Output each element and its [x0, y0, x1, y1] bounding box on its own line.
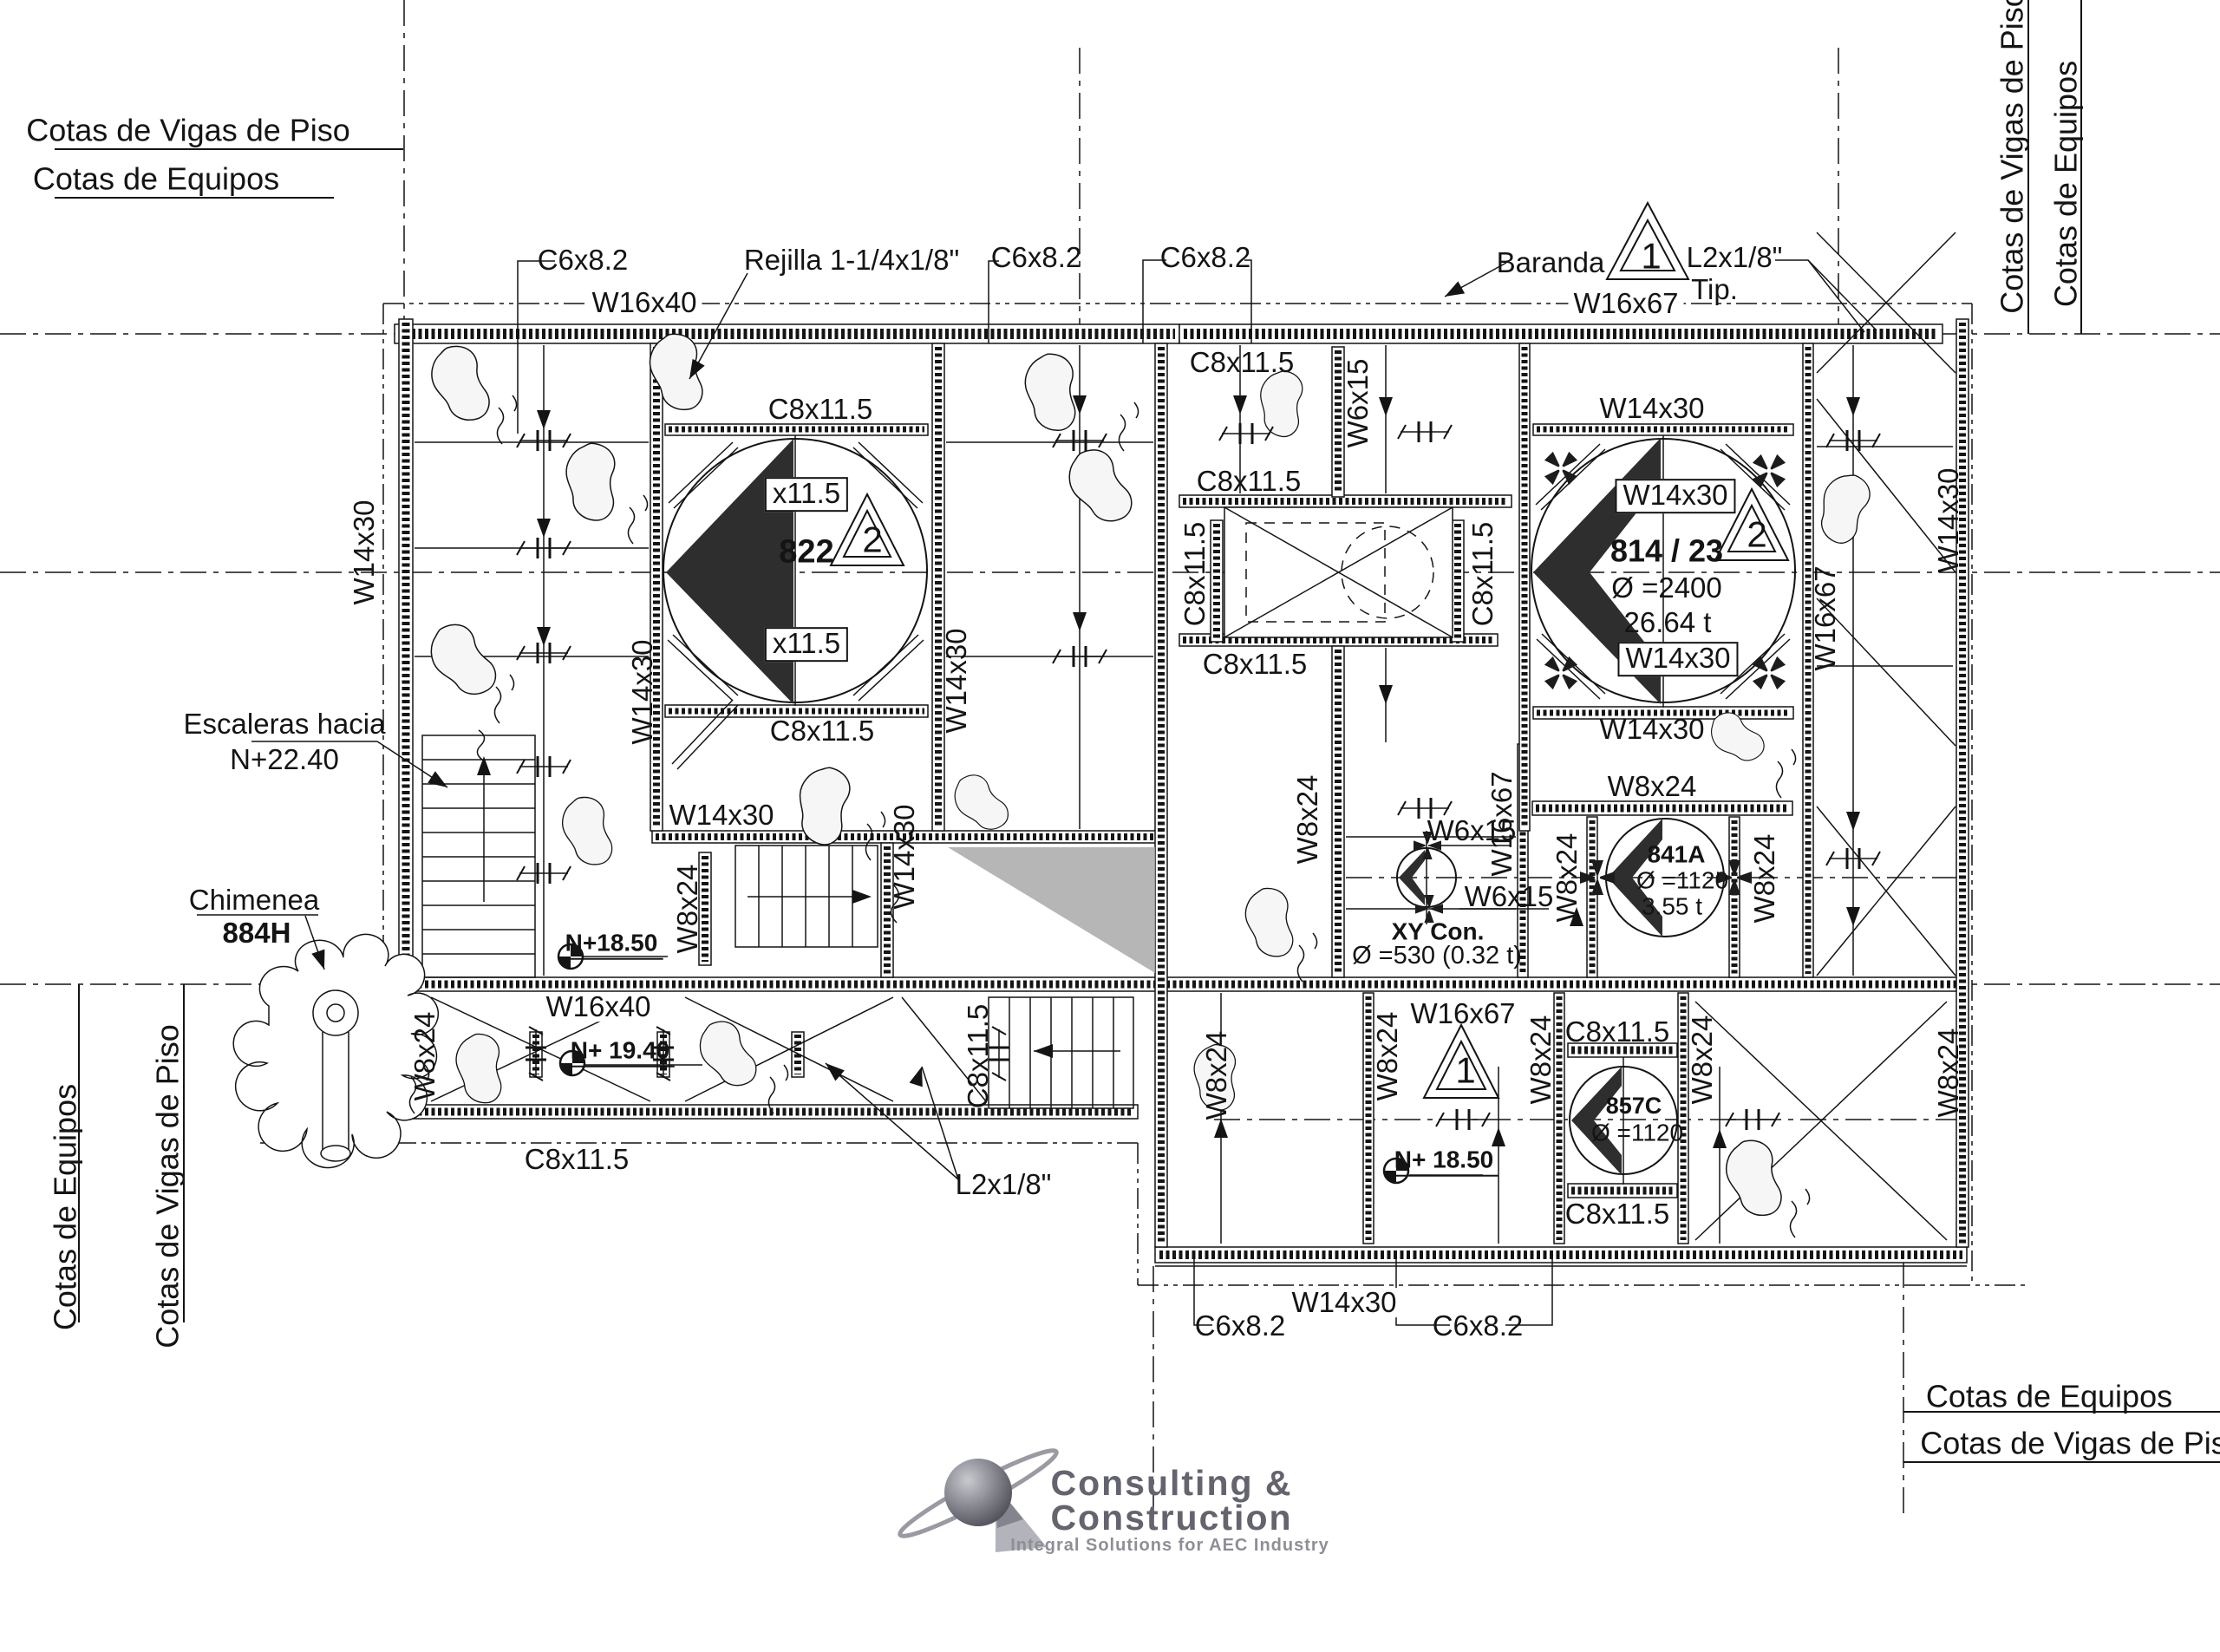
corner-br-equipos: Cotas de Equipos [1926, 1381, 2172, 1414]
handrail-tag: Baranda [1497, 248, 1605, 278]
corner-bl-vigas-de-piso: Cotas de Vigas de Piso [153, 1024, 185, 1348]
fan-weight: 26.64 t [1624, 608, 1712, 637]
beam-tag: W8x24 [1526, 1015, 1556, 1105]
beam-tag: W14x30 [1617, 642, 1738, 676]
beam-tag: C8x11.5 [1468, 522, 1498, 626]
beam-tag: W8x24 [673, 865, 702, 954]
beam-tag: W14x30 [1599, 715, 1704, 744]
grating-tag: Rejilla 1-1/4x1/8" [744, 245, 959, 275]
angle-tag: L2x1/8" [1687, 243, 1783, 272]
beam-tag: C8x11.5 [770, 716, 874, 746]
plan-labels-layer: Cotas de Vigas de PisoCotas de EquiposCo… [0, 0, 2220, 1652]
stair-note-line1: Escaleras hacia [184, 709, 386, 739]
beam-tag: W14x30 [1615, 479, 1735, 513]
beam-tag: W6x15 [1427, 816, 1517, 846]
beam-tag: W14x30 [349, 500, 379, 604]
corner-tl-vigas-de-piso: Cotas de Vigas de Piso [26, 115, 350, 147]
level-mark: N+18.50 [560, 931, 663, 960]
corner-br-vigas-de-piso: Cotas de Vigas de Piso [1920, 1428, 2220, 1460]
beam-tag: C8x11.5 [1180, 522, 1210, 626]
beam-tag: C8x11.5 [963, 1004, 993, 1108]
beam-tag: W14x30 [669, 800, 774, 830]
fan-weight: 3.55 t [1642, 895, 1702, 920]
beam-tag: W8x24 [1750, 834, 1779, 924]
beam-tag: W6x15 [1343, 359, 1373, 448]
fan-diameter: Ø =1120 [1591, 1121, 1683, 1146]
beam-tag: W14x30 [1286, 1288, 1401, 1317]
level-mark: N+ 19.40 [565, 1039, 675, 1068]
beam-tag: W14x30 [1934, 467, 1963, 572]
beam-tag: W8x24 [1373, 1012, 1402, 1101]
beam-tag: C6x8.2 [1433, 1311, 1524, 1341]
beam-tag: W8x24 [1552, 833, 1582, 923]
beam-tag: W8x24 [410, 1012, 440, 1101]
beam-tag: W8x24 [1293, 775, 1322, 865]
corner-tr-equipos: Cotas de Equipos [2051, 61, 2083, 307]
connection-size: Ø =530 (0.32 t) [1352, 944, 1522, 970]
triangle-1-number: 1 [1641, 238, 1661, 276]
corner-bl-equipos: Cotas de Equipos [50, 1084, 82, 1330]
connection-tag: XY Con. [1392, 920, 1485, 945]
beam-tag: W14x30 [890, 804, 919, 909]
beam-tag: W16x67 [1568, 289, 1683, 318]
beam-tag: W14x30 [628, 639, 657, 744]
triangle-2-number: 2 [1747, 517, 1766, 554]
beam-tag: C8x11.5 [1565, 1199, 1669, 1229]
logo-tagline: Integral Solutions for AEC Industry [1010, 1537, 1329, 1554]
beam-tag: W6x15 [1465, 882, 1554, 911]
triangle-2-number: 2 [862, 522, 882, 559]
beam-tag: W8x24 [1608, 772, 1697, 801]
beam-tag: C6x8.2 [1195, 1311, 1286, 1341]
corner-tl-equipos: Cotas de Equipos [33, 164, 279, 196]
beam-tag: x11.5 [765, 627, 848, 662]
beam-tag: C8x11.5 [1565, 1017, 1669, 1047]
beam-tag: W8x24 [1934, 1028, 1963, 1118]
beam-tag: C8x11.5 [525, 1145, 629, 1174]
fan-diameter: Ø =2400 [1611, 573, 1722, 603]
beam-tag: W16x67 [1410, 999, 1515, 1028]
beam-tag: C8x11.5 [1190, 348, 1294, 377]
beam-tag: W14x30 [942, 628, 971, 733]
level-mark: N+ 18.50 [1389, 1148, 1498, 1177]
beam-tag: x11.5 [765, 477, 848, 512]
corner-tr-vigas-de-piso: Cotas de Vigas de Piso [1997, 0, 2029, 314]
fan-tag: 822 [779, 536, 833, 570]
beam-tag: C6x8.2 [991, 243, 1082, 272]
beam-tag: W8x24 [1688, 1015, 1717, 1105]
logo-line2: Construction [1050, 1500, 1292, 1537]
chimney-note: Chimenea [189, 885, 319, 915]
beam-tag: C6x8.2 [538, 245, 629, 275]
angle-tag-typ: Tip. [1691, 275, 1738, 304]
beam-tag: W16x67 [1811, 565, 1840, 670]
chimney-tag: 884H [223, 918, 291, 948]
fan-tag: 857C [1606, 1094, 1662, 1119]
stair-note-line2: N+22.40 [230, 745, 339, 774]
beam-tag: C8x11.5 [1197, 467, 1301, 496]
floor-framing-plan: Cotas de Vigas de PisoCotas de EquiposCo… [0, 0, 2220, 1652]
triangle-1-number: 1 [1455, 1053, 1475, 1090]
beam-tag: C8x11.5 [768, 395, 872, 424]
fan-tag: 814 / 23 [1610, 536, 1723, 568]
beam-tag: C6x8.2 [1160, 243, 1251, 272]
fan-diameter: Ø =1120 [1636, 869, 1728, 894]
beam-tag: W8x24 [1202, 1031, 1231, 1120]
beam-tag: W16x40 [540, 992, 656, 1022]
beam-tag: C8x11.5 [1203, 650, 1307, 679]
logo-line1: Consulting & [1050, 1466, 1292, 1502]
beam-tag: W14x30 [1599, 394, 1704, 423]
beam-tag: W16x40 [586, 288, 702, 317]
fan-tag: 841A [1648, 843, 1706, 868]
angle-tag: L2x1/8" [956, 1170, 1052, 1199]
